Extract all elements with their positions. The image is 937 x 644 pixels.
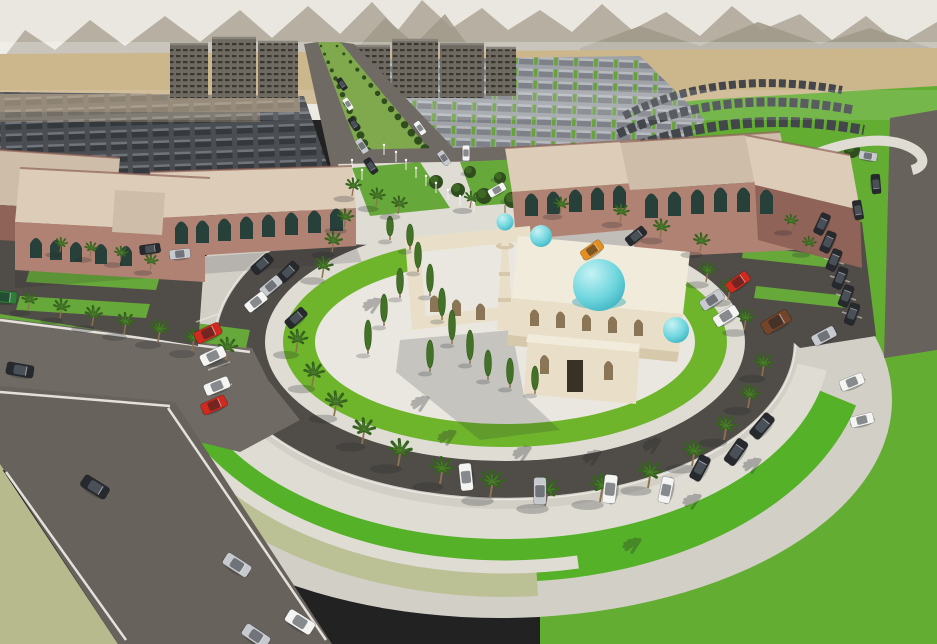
palm-shadow-ellipse xyxy=(792,252,810,258)
cypress-shadow xyxy=(406,272,420,277)
cypress-shadow xyxy=(378,240,392,245)
minaret-dome xyxy=(497,214,514,231)
light-pole-lamp xyxy=(351,159,353,161)
median-tree xyxy=(340,92,345,97)
car-cabin xyxy=(872,179,880,189)
tower-block xyxy=(486,48,516,96)
car-cabin xyxy=(535,485,544,498)
palm-shadow-ellipse xyxy=(380,214,401,220)
palm-shadow-ellipse xyxy=(680,252,702,259)
cypress-shadow xyxy=(418,372,432,377)
palm-shadow-ellipse xyxy=(102,333,127,341)
cypress-tree xyxy=(415,242,422,268)
cypress-shadow xyxy=(458,364,472,369)
car-cabin xyxy=(145,245,156,253)
median-tree xyxy=(395,114,402,121)
roof-plane xyxy=(112,190,165,235)
cypress-shadow xyxy=(498,388,512,393)
palm-shadow-ellipse xyxy=(571,500,604,510)
palm-shadow-ellipse xyxy=(685,281,708,288)
palm-shadow-ellipse xyxy=(134,270,152,276)
cypress-tree xyxy=(365,320,372,350)
cypress-shadow xyxy=(388,298,402,303)
car xyxy=(0,290,18,306)
cypress-shadow xyxy=(418,296,432,301)
palm-shadow-ellipse xyxy=(640,238,662,245)
round-tree-highlight xyxy=(465,167,472,174)
palm-shadow-ellipse xyxy=(602,222,623,228)
car xyxy=(461,145,469,162)
palm-shadow-ellipse xyxy=(722,329,747,337)
cypress-shadow xyxy=(523,394,537,399)
palm-shadow-ellipse xyxy=(543,214,563,220)
cypress-tree xyxy=(467,330,474,360)
car-cabin xyxy=(461,470,472,484)
palm-shadow-ellipse xyxy=(336,442,366,451)
palm-shadow-ellipse xyxy=(74,257,92,262)
palm-shadow-ellipse xyxy=(135,341,161,349)
palm-shadow-ellipse xyxy=(309,415,338,424)
minaret-band xyxy=(499,272,510,276)
palm-shadow-ellipse xyxy=(370,464,401,474)
minaret-band xyxy=(498,298,511,302)
round-tree-highlight xyxy=(495,173,502,180)
light-pole-lamp xyxy=(395,151,397,153)
light-pole-lamp xyxy=(383,144,385,146)
palm-shadow-ellipse xyxy=(461,496,494,506)
median-tree xyxy=(349,60,353,64)
median-tree xyxy=(320,45,323,48)
rendering-viewport xyxy=(0,0,937,644)
palm-shadow-ellipse xyxy=(699,439,728,448)
secondary-dome xyxy=(530,225,552,247)
palm-shadow-ellipse xyxy=(453,208,473,214)
light-pole-lamp xyxy=(361,169,363,171)
palm-shadow-ellipse xyxy=(620,486,651,496)
cypress-tree xyxy=(439,288,446,316)
median-tree xyxy=(323,53,326,56)
median-tree xyxy=(336,45,339,48)
round-tree-highlight xyxy=(478,189,487,198)
cypress-shadow xyxy=(476,380,490,385)
tower-block xyxy=(212,38,256,98)
palm-shadow-ellipse xyxy=(40,318,62,325)
light-pole-lamp xyxy=(415,167,417,169)
light-pole-lamp xyxy=(425,175,427,177)
cypress-tree xyxy=(397,268,404,294)
light-pole-lamp xyxy=(459,195,461,197)
median-tree xyxy=(368,83,373,88)
palm-shadow-ellipse xyxy=(273,351,299,359)
main-dome xyxy=(573,259,625,311)
palm-shadow-ellipse xyxy=(412,482,443,492)
palm-shadow-ellipse xyxy=(45,252,62,257)
cypress-tree xyxy=(427,264,434,292)
round-tree-highlight xyxy=(452,184,460,192)
annex-doorway xyxy=(567,360,583,392)
cypress-shadow xyxy=(372,326,386,331)
cypress-shadow xyxy=(356,354,370,359)
median-tree xyxy=(375,91,380,96)
light-pole-lamp xyxy=(435,182,437,184)
median-tree xyxy=(382,98,388,104)
tower-block xyxy=(170,44,208,98)
palm-shadow-ellipse xyxy=(516,504,549,514)
median-tree xyxy=(414,137,422,145)
aerial-render xyxy=(0,0,937,644)
cypress-tree xyxy=(381,294,388,322)
median-tree xyxy=(408,129,416,137)
median-tree xyxy=(326,60,330,64)
palm-shadow-ellipse xyxy=(739,375,765,383)
palm-shadow-ellipse xyxy=(300,277,325,285)
palm-shadow-ellipse xyxy=(358,206,379,212)
median-tree xyxy=(362,75,366,79)
car-cabin xyxy=(463,149,468,156)
median-tree xyxy=(342,52,345,55)
light-pole-lamp xyxy=(447,189,449,191)
cypress-tree xyxy=(407,224,414,246)
palm-shadow-ellipse xyxy=(169,350,195,358)
car xyxy=(534,476,549,505)
car-cabin xyxy=(0,292,10,302)
median-tree xyxy=(401,121,408,128)
tower-block xyxy=(440,44,484,98)
median-tree xyxy=(355,68,359,72)
cypress-tree xyxy=(449,310,456,340)
cypress-tree xyxy=(485,350,492,376)
entrance-annex xyxy=(524,334,640,404)
tower-block xyxy=(258,42,298,98)
tower-block xyxy=(392,40,438,98)
palm-shadow-ellipse xyxy=(334,196,355,202)
car-cabin xyxy=(175,250,185,258)
median-tree xyxy=(330,68,334,72)
corner-dome xyxy=(663,317,689,343)
palm-shadow-ellipse xyxy=(288,385,315,393)
palm-shadow-ellipse xyxy=(104,262,122,268)
car-cabin xyxy=(604,482,615,496)
cypress-shadow xyxy=(430,320,444,325)
palm-shadow-ellipse xyxy=(10,310,31,316)
cypress-tree xyxy=(532,366,539,390)
minaret-lantern xyxy=(501,228,509,246)
cypress-shadow xyxy=(440,344,454,349)
light-pole-lamp xyxy=(405,159,407,161)
cypress-tree xyxy=(507,358,514,384)
palm-shadow-ellipse xyxy=(774,230,792,236)
palm-shadow-ellipse xyxy=(724,407,751,415)
cypress-tree xyxy=(427,340,434,368)
palm-shadow-ellipse xyxy=(71,325,94,332)
cypress-shadow xyxy=(398,250,412,255)
median-tree xyxy=(388,106,394,112)
